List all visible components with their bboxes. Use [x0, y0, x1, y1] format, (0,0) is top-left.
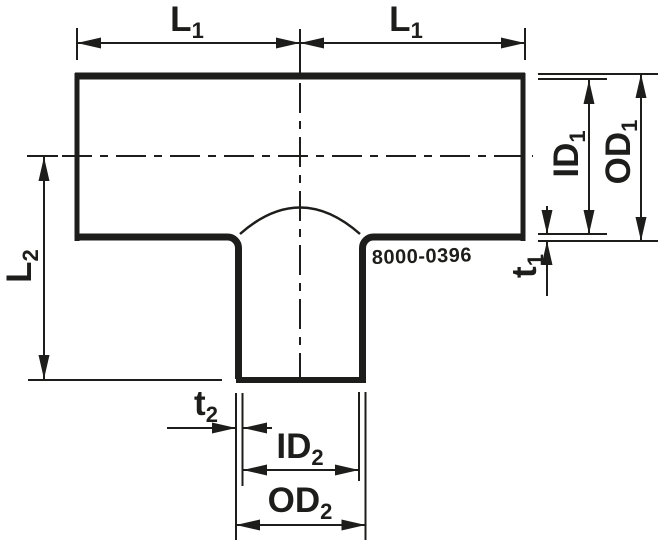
label-id2: ID2 — [276, 427, 323, 470]
tee-body — [75, 73, 525, 380]
arrowhead-left — [243, 423, 267, 434]
arrowhead-down — [39, 355, 50, 379]
label-od2: OD2 — [268, 481, 333, 524]
dim-l2 — [27, 156, 222, 380]
arrowhead-up — [39, 157, 50, 181]
label-l1-right: L1 — [389, 0, 423, 43]
arrowhead-right — [342, 520, 366, 531]
arrowhead-right — [276, 38, 300, 49]
arrowhead-left — [243, 465, 267, 476]
arrowhead-up — [584, 80, 595, 104]
reducing-tee-drawing: L1 L1 L2 ID1 OD — [0, 0, 659, 542]
arrowhead-right — [335, 465, 359, 476]
arrowhead-right — [501, 38, 525, 49]
dim-od2 — [236, 520, 366, 531]
label-t1: t1 — [505, 254, 548, 278]
run-bottom-left-and-branch-left-wall — [75, 237, 239, 379]
arrowhead-left — [236, 520, 260, 531]
dim-t2 — [167, 423, 272, 434]
arrowhead-up — [636, 74, 647, 98]
fill-root: L1 L1 L2 ID1 OD — [0, 0, 658, 540]
label-id1: ID1 — [547, 130, 590, 177]
arrowhead-down — [636, 217, 647, 241]
arrowhead-left — [300, 38, 324, 49]
arrowhead-left — [77, 38, 101, 49]
dim-t1 — [542, 206, 553, 296]
part-number: 8000-0396 — [372, 244, 473, 269]
arrowhead-down — [542, 210, 553, 234]
dim-id2 — [243, 465, 359, 476]
label-t2: t2 — [194, 384, 218, 427]
centerlines — [62, 29, 533, 391]
label-od1: OD1 — [599, 120, 642, 185]
label-l1-left: L1 — [170, 0, 204, 43]
technical-drawing-canvas: L1 L1 L2 ID1 OD — [0, 0, 659, 542]
stroke-root: L1 L1 L2 ID1 OD — [0, 0, 658, 540]
label-l2: L2 — [0, 249, 43, 283]
arrowhead-down — [584, 210, 595, 234]
